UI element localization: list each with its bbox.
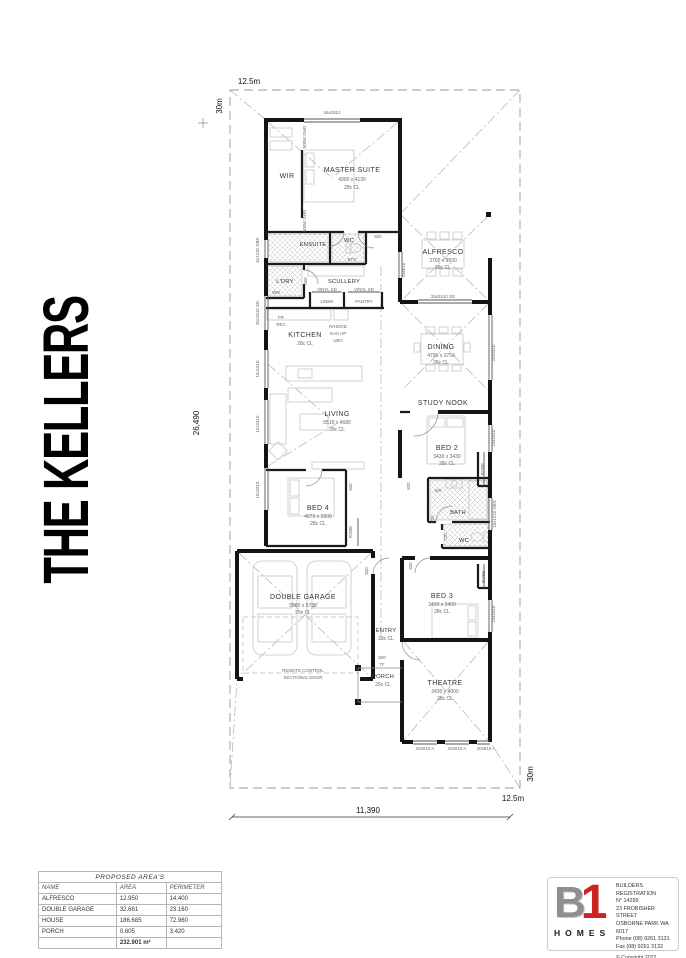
table-title: PROPOSED AREA'S <box>39 872 222 883</box>
garage-door-note-2: SECTIONAL DOOR <box>283 675 322 680</box>
window-label-kitchen: 25x1510 SD <box>255 301 260 325</box>
room-ceil-garage: 25c CL <box>295 610 311 616</box>
col-header-area: AREA <box>116 883 166 894</box>
room-ceil-porch: 25c CL <box>375 682 391 688</box>
room-label-garage: DOUBLE GARAGE <box>270 594 336 601</box>
perimeter-value: 3.420 <box>166 927 221 938</box>
b1-homes-logo: B 1 HOMES <box>554 880 616 948</box>
window-label-theatre3: 20x610 A <box>477 746 495 751</box>
room-label-bed2: BED 2 <box>436 445 458 452</box>
room-label-alfresco: ALFRESCO <box>423 249 464 256</box>
area-name: ALFRESCO <box>39 894 117 905</box>
area-value: 32.661 <box>116 905 166 916</box>
ubo-label: UBO <box>333 338 343 343</box>
col-header-perimeter: PERIMETER <box>166 883 221 894</box>
room-ceil-bed2: 28c CL <box>439 461 455 467</box>
room-label-master: MASTER SUITE <box>324 167 381 174</box>
hatched-floors <box>268 234 488 546</box>
window-label-bed3: 16x1810 <box>491 605 496 622</box>
robe-label-bed4: ROBE <box>348 526 353 539</box>
total-area-value: 232.901 m² <box>116 938 166 949</box>
reg-line: N° 14299 <box>616 898 676 906</box>
lot-boundary <box>198 90 520 788</box>
robe-label-bed3: ROBE <box>481 571 486 584</box>
door-label-ldry: 820 <box>303 277 308 285</box>
floorplan-drawing: 12.5m 30m 26,490 30m 12.5m 11,390 WIR MA… <box>0 0 686 958</box>
table-title-row: PROPOSED AREA'S <box>39 872 222 883</box>
room-dims-bed2: 3430 x 3430 <box>433 454 461 460</box>
window-label-bath: 16x1210 OBS <box>492 500 497 527</box>
dim-lot-width-top: 12.5m <box>238 77 261 86</box>
living-sofas <box>269 388 364 469</box>
door-label-bed4: 820 <box>348 483 353 491</box>
room-dims-garage: 5980 x 5785 <box>289 603 317 609</box>
door-label-bed3: 820 <box>408 562 413 570</box>
builder-registration-text: BUILDERS REGISTRATION N° 14299 23 FROBIS… <box>616 880 676 948</box>
table-total-row: 232.901 m² <box>39 938 222 949</box>
garage-door-note-1: REMOTE CONTROL <box>282 668 324 673</box>
door-label-bath: 720 <box>430 515 435 523</box>
area-name: PORCH <box>39 927 117 938</box>
linen-label: LINEN <box>321 299 334 304</box>
area-value: 186.685 <box>116 916 166 927</box>
door-label-wc2: 720 <box>443 533 448 541</box>
room-dims-master: 4300 x 4130 <box>338 177 366 183</box>
reg-line: OSBORNE PARK WA 6017 <box>616 921 676 936</box>
room-label-wc2: WC <box>459 538 469 544</box>
room-label-kitchen: KITCHEN <box>288 332 322 339</box>
dim-lot-depth-left: 30m <box>215 98 224 114</box>
shower-label-bath: S/R <box>434 488 441 493</box>
master-bed <box>304 150 354 202</box>
total-spacer <box>39 938 117 949</box>
area-name: DOUBLE GARAGE <box>39 905 117 916</box>
door-label-entry-tf: TF <box>379 662 385 667</box>
total-spacer <box>166 938 221 949</box>
room-label-theatre: THEATRE <box>428 680 463 687</box>
room-dims-bed4: 4070 x 2900 <box>304 514 332 520</box>
dho-label-1: 500W DHO <box>302 125 307 148</box>
room-ceil-alfresco: 28c CL <box>435 265 451 271</box>
perimeter-value: 72.960 <box>166 916 221 927</box>
room-label-ldry: L'DRY <box>276 279 293 285</box>
table-row: ALFRESCO 12.950 14.400 <box>39 894 222 905</box>
room-ceil-entry: 28c CL <box>378 636 394 642</box>
window-label-alfresco-side: 25x610 <box>401 262 406 277</box>
room-dims-bed3: 3430 x 3400 <box>428 602 456 608</box>
gashp-label: GAS HP <box>330 331 347 336</box>
proposed-areas-table: PROPOSED AREA'S NAME AREA PERIMETER ALFR… <box>38 871 222 949</box>
fridge-label-rec: REC <box>276 322 285 327</box>
window-label-master: 16x1810 <box>324 110 341 115</box>
room-dims-alfresco: 3700 x 3500 <box>429 258 457 264</box>
vinyl-sd-label-2: VINYL SD <box>354 287 374 292</box>
room-ceil-bed4: 28c CL <box>310 521 326 527</box>
room-dims-dining: 4700 x 3750 <box>427 353 455 359</box>
reg-line: Phone (08) 9261 3131 <box>616 936 676 944</box>
window-label-living1: 16x1510 <box>255 360 260 377</box>
door-label-wc1: 820 <box>374 234 382 239</box>
builder-brand-block: B 1 HOMES BUILDERS REGISTRATION N° 14299… <box>547 877 679 951</box>
room-ceil-dining: 28c CL <box>433 360 449 366</box>
pantry-label: PANTRY <box>355 299 372 304</box>
perimeter-value: 23.160 <box>166 905 221 916</box>
floorplan-page: THE KELLERS <box>0 0 686 958</box>
door-label-entry: 820 <box>378 655 386 660</box>
perimeter-value: 14.400 <box>166 894 221 905</box>
room-dims-living: 5510 x 4680 <box>323 420 351 426</box>
window-label-dining: 25x2410 <box>491 344 496 361</box>
dim-lot-width-bottom: 12.5m <box>502 794 525 803</box>
room-ceil-master: 28c CL <box>344 185 360 191</box>
room-ceil-bed3: 28c CL <box>434 609 450 615</box>
room-label-ensuite: ENSUITE <box>300 242 327 248</box>
windows <box>265 119 492 744</box>
dimension-marks: 12.5m 30m 26,490 30m 12.5m 11,390 <box>192 77 535 820</box>
dim-lot-depth-right: 30m <box>526 766 535 782</box>
room-label-porch: PORCH <box>372 674 394 680</box>
area-name: HOUSE <box>39 916 117 927</box>
rhood-label: R/HOOD <box>329 324 347 329</box>
fridge-label-fr: FR <box>278 315 284 320</box>
room-label-bath: BATH <box>450 510 466 516</box>
room-ceil-living: 28c CL <box>329 427 345 433</box>
room-label-bed4: BED 4 <box>307 505 329 512</box>
vinyl-sd-label-1: VINYL SD <box>317 287 337 292</box>
dho-label-2: 500W DHO <box>302 209 307 232</box>
wir-shelves <box>270 128 292 150</box>
window-label-bed4: 16x1810 <box>255 481 260 498</box>
robe-label-bed2: ROBE <box>480 463 485 476</box>
room-label-scullery: SCULLERY <box>328 279 360 285</box>
reg-line: BUILDERS REGISTRATION <box>616 883 676 898</box>
reg-line: 23 FROBISHER STREET <box>616 906 676 921</box>
table-row: HOUSE 186.685 72.960 <box>39 916 222 927</box>
table-row: DOUBLE GARAGE 32.661 23.160 <box>39 905 222 916</box>
room-ceil-theatre: 28c CL <box>437 696 453 702</box>
door-label-garage: 820 <box>364 567 369 575</box>
door-label-alfresco-sd: 25x2410 SD <box>431 294 455 299</box>
room-label-wir: WIR <box>280 173 295 180</box>
room-ceil-kitchen: 28c CL <box>297 341 313 347</box>
room-label-dining: DINING <box>428 344 455 351</box>
room-dims-theatre: 3430 x 4000 <box>431 689 459 695</box>
table-row: PORCH 0.605 3.420 <box>39 927 222 938</box>
area-value: 12.950 <box>116 894 166 905</box>
window-label-bed2: 16x1810 <box>491 429 496 446</box>
logo-numeral-1: 1 <box>581 880 608 926</box>
wm-label: WM <box>272 290 280 295</box>
room-label-entry: ENTRY <box>376 628 397 634</box>
room-label-study: STUDY NOOK <box>418 400 468 407</box>
room-label-wc1: WC <box>344 238 354 244</box>
window-label-ensuite: 6x1210 OBS <box>255 237 260 262</box>
annotation-labels: 16x1810 500W DHO 500W DHO 820 820 6x1210… <box>255 110 497 751</box>
reg-line: Fax (08) 9261 3132 <box>616 944 676 952</box>
garage-cars <box>243 561 358 673</box>
dim-house-depth: 26,490 <box>192 410 201 435</box>
bto-label: BTO <box>348 257 358 262</box>
area-value: 0.605 <box>116 927 166 938</box>
window-label-living2: 16x2410 <box>255 415 260 432</box>
door-label-bed2: 820 <box>406 482 411 490</box>
room-label-living: LIVING <box>324 411 349 418</box>
window-label-theatre2: 20x610 A <box>448 746 466 751</box>
window-label-theatre1: 20x610 A <box>416 746 434 751</box>
scullery-bench <box>308 266 364 276</box>
table-header-row: NAME AREA PERIMETER <box>39 883 222 894</box>
logo-homes-text: HOMES <box>554 928 616 938</box>
room-label-bed3: BED 3 <box>431 593 453 600</box>
walls <box>237 120 491 742</box>
dim-house-width: 11,390 <box>356 806 380 815</box>
col-header-name: NAME <box>39 883 117 894</box>
